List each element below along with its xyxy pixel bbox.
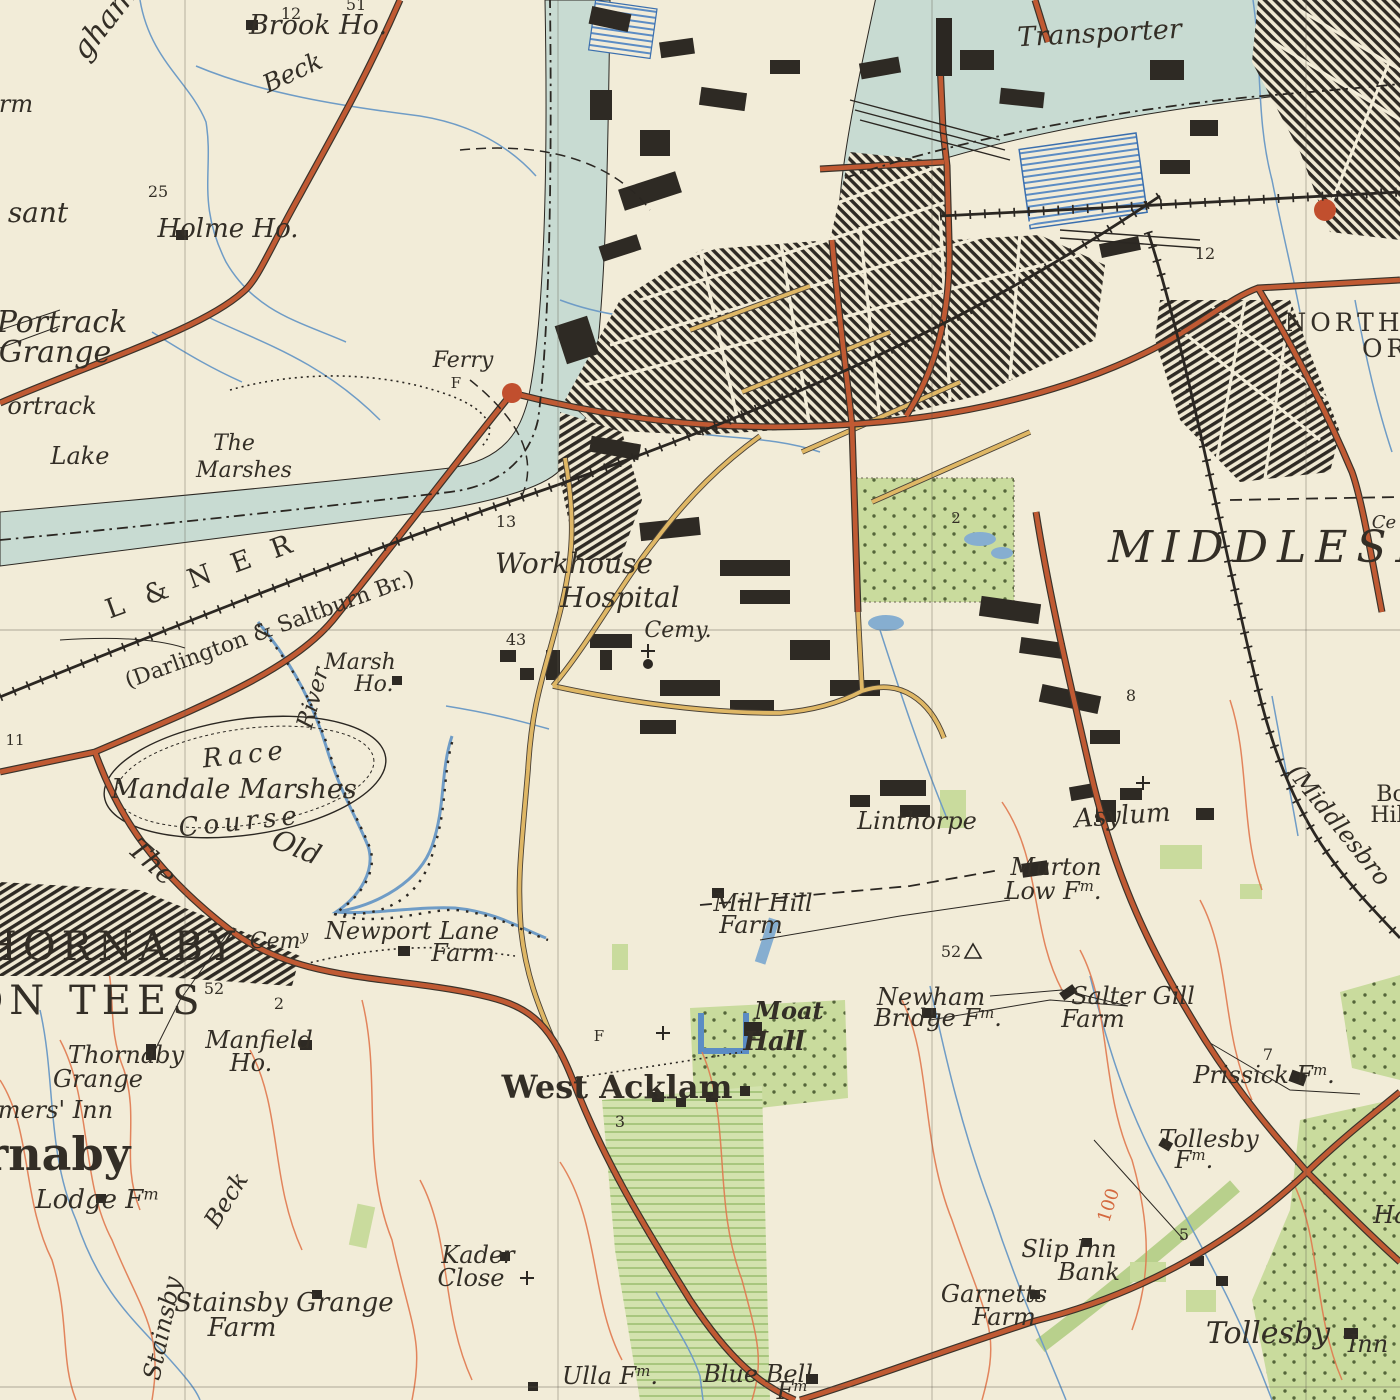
map-label-13: 13: [496, 512, 516, 531]
map-label-8: 8: [1126, 686, 1136, 705]
map-label-farm: Farm: [1060, 1005, 1125, 1033]
map-label-thornaby: THORNABY: [0, 924, 241, 970]
map-label-11: 11: [5, 731, 24, 749]
map-label-close: Close: [437, 1264, 504, 1292]
map-label-lodge-f-m: Lodge Fm​: [34, 1184, 158, 1215]
ferry-junction-dot: [502, 383, 522, 403]
map-label-ha: Ha: [1372, 1201, 1400, 1229]
map-label-farm: Farm: [718, 911, 783, 939]
station-dot: [1314, 199, 1336, 221]
map-label-ce: Ce: [1372, 512, 1396, 533]
map-label-43: 43: [506, 630, 526, 649]
map-label-grange: Grange: [0, 335, 111, 370]
map-label-25: 25: [148, 182, 168, 201]
map-label-3: 3: [615, 1112, 625, 1131]
map-label-grange: Grange: [53, 1065, 143, 1093]
map-canvas: TransporterBrook Ho.5112Beckghamrm25sant…: [0, 0, 1400, 1400]
map-label-rm: rm: [0, 90, 33, 118]
map-label-7: 7: [1263, 1045, 1273, 1064]
map-label-5: 5: [1179, 1225, 1189, 1244]
map-label-the: The: [213, 431, 255, 456]
map-label-cemy: Cemy.: [644, 618, 711, 643]
map-label-12: 12: [1195, 244, 1215, 263]
map-label-moat: Moat: [753, 996, 823, 1025]
map-label-hall: Hall: [742, 1027, 804, 1057]
map-label-cem-y: Cemy​: [250, 929, 309, 954]
map-label-f: F: [451, 374, 461, 392]
map-label-2: 2: [274, 994, 284, 1013]
transporter-bridge-symbol: [936, 18, 952, 76]
map-label-linthorpe: Linthorpe: [856, 807, 977, 835]
map-label-hospital: Hospital: [559, 581, 679, 614]
map-label-orm: ORM: [1362, 334, 1400, 363]
map-label-ferry: Ferry: [432, 348, 494, 373]
map-label-middlesbr: MIDDLESBR: [1107, 522, 1400, 573]
map-label-sant: sant: [8, 196, 69, 229]
map-label-mandale-marshes: Mandale Marshes: [110, 774, 356, 805]
map-label-brook-ho: Brook Ho.: [248, 10, 387, 41]
map-label-farm: Farm: [971, 1303, 1036, 1331]
map-label-f: F: [594, 1027, 604, 1045]
map-label-west-acklam: West Acklam: [501, 1068, 733, 1106]
map-label-51: 51: [346, 0, 366, 14]
map-label-52: 52: [941, 942, 961, 961]
map-label-north: NORTH: [1284, 308, 1400, 337]
map-label-holme-ho: Holme Ho.: [156, 214, 298, 244]
map-label-ortrack: ortrack: [7, 392, 96, 420]
map-label-2: 2: [951, 509, 961, 527]
os-map-sheet: TransporterBrook Ho.5112Beckghamrm25sant…: [0, 0, 1400, 1400]
map-label-thornaby: Thornaby: [0, 1127, 132, 1181]
map-label-bank: Bank: [1057, 1258, 1120, 1286]
map-label-52: 52: [204, 979, 224, 998]
map-label-marshes: Marshes: [195, 458, 292, 483]
map-label-lake: Lake: [50, 442, 110, 470]
map-label-tollesby: Tollesby: [1206, 1316, 1331, 1351]
map-label-farm: Farm: [430, 939, 495, 967]
map-label-farmers-inn: Farmers' Inn: [0, 1096, 113, 1124]
map-label-ho: Ho.: [229, 1049, 273, 1077]
map-label-inn: Inn: [1347, 1330, 1388, 1358]
map-label-12: 12: [281, 4, 301, 23]
map-label-farm: Farm: [207, 1313, 277, 1343]
map-label-hil: Hil: [1370, 803, 1400, 828]
map-label-workhouse: Workhouse: [495, 547, 653, 580]
map-label-on-tees: ON TEES: [0, 978, 206, 1024]
map-label-ho: Ho.: [353, 672, 393, 697]
